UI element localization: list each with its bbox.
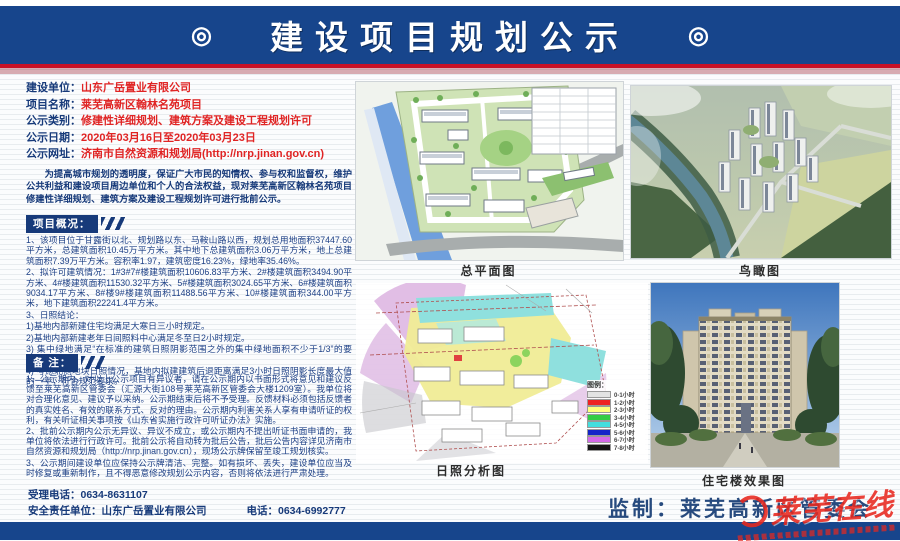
- slashes-decoration-icon: [101, 217, 125, 230]
- info-label: 建设单位：: [26, 80, 81, 97]
- header-banner: ◎ 建设项目规划公示 ◎: [0, 6, 900, 68]
- safety-unit: 安全责任单位：山东广岳置业有限公司: [28, 503, 207, 518]
- ornament-left-icon: ◎: [191, 21, 212, 50]
- info-row-website: 公示网址： 济南市自然资源和规划局(http://nrp.jinan.gov.c…: [26, 146, 352, 163]
- left-column: 建设单位： 山东广岳置业有限公司 项目名称： 莱芜高新区翰林名苑项目 公示类别：…: [26, 70, 352, 522]
- notes-text: 1、公示期内，对以上公示项目有异议者，请在公示期内以书面形式将意见和建议反馈至莱…: [26, 374, 352, 482]
- slashes-decoration-icon: [81, 356, 105, 369]
- overview-line: 2)基地内部新建老年日间照料中心满足冬至日2小时规定。: [26, 333, 352, 343]
- legend-row: 7-8小时: [587, 444, 645, 452]
- legend-swatch: [587, 436, 611, 443]
- overview-line: 3、日照结论：: [26, 310, 352, 320]
- ornament-right-icon: ◎: [688, 21, 709, 50]
- info-value: 山东广岳置业有限公司: [81, 80, 191, 97]
- intro-paragraph: 为提高城市规划的透明度，保证广大市民的知情权、参与权和监督权，维护公共利益和建设…: [26, 168, 352, 205]
- residential-render-photo: [651, 283, 839, 467]
- watermark-text: 莱芜在线: [768, 480, 895, 533]
- info-row-date: 公示日期： 2020年03月16日至2020年03月23日: [26, 130, 352, 147]
- watermark-logo-icon: [735, 494, 769, 528]
- info-label: 公示类别：: [26, 113, 81, 130]
- project-info-list: 建设单位： 山东广岳置业有限公司 项目名称： 莱芜高新区翰林名苑项目 公示类别：…: [26, 80, 352, 163]
- main-content: 建设单位： 山东广岳置业有限公司 项目名称： 莱芜高新区翰林名苑项目 公示类别：…: [0, 70, 900, 522]
- info-value: 莱芜高新区翰林名苑项目: [81, 97, 202, 114]
- legend-title: 图例：: [587, 380, 645, 390]
- legend-swatch: [587, 414, 611, 421]
- site-plan-caption: 总平面图: [355, 262, 622, 279]
- notes-section-header: 备 注：: [26, 355, 105, 370]
- notes-line: 3、公示期间建设单位应保持公示牌清洁、完整。如有损坏、丢失，建设单位应当及时修复…: [26, 458, 352, 478]
- overview-section-header: 项目概况：: [26, 216, 125, 231]
- bird-view-photo: [631, 86, 891, 258]
- legend-swatch: [587, 406, 611, 413]
- info-label: 公示网址：: [26, 146, 81, 163]
- notes-line: 1、公示期内，对以上公示项目有异议者，请在公示期内以书面形式将意见和建议反馈至莱…: [26, 374, 352, 425]
- info-row-category: 公示类别： 修建性详细规划、建筑方案及建设工程规划许可: [26, 113, 352, 130]
- legend-swatch: [587, 429, 611, 436]
- site-plan-image: [355, 81, 624, 261]
- acceptance-phone: 受理电话：0634-8631107: [28, 487, 148, 502]
- legend-swatch: [587, 391, 611, 398]
- legend-swatch: [587, 444, 611, 451]
- overview-text: 1、该项目位于甘露街以北、规划路以东、马鞍山路以西，规划总用地面积37447.6…: [26, 235, 352, 367]
- overview-line: 2、拟许可建筑情况：1#3#7#楼建筑面积10606.83平方米、2#楼建筑面积…: [26, 267, 352, 309]
- legend-swatch: [587, 399, 611, 406]
- sunshine-analysis-image: 图例： 0-1小时 1-2小时 2-3小时 3-4小时 4-5小时: [356, 283, 648, 463]
- info-value: 济南市自然资源和规划局(http://nrp.jinan.gov.cn): [81, 146, 324, 163]
- page-title: 建设项目规划公示: [270, 11, 630, 59]
- sunshine-legend: 图例： 0-1小时 1-2小时 2-3小时 3-4小时 4-5小时: [587, 380, 645, 451]
- laiwu-online-watermark: 莱芜在线: [734, 480, 895, 541]
- info-row-project: 项目名称： 莱芜高新区翰林名苑项目: [26, 97, 352, 114]
- info-label: 项目名称：: [26, 97, 81, 114]
- legend-label: 7-8小时: [614, 443, 635, 452]
- overview-line: 1、该项目位于甘露街以北、规划路以东、马鞍山路以西，规划总用地面积37447.6…: [26, 235, 352, 266]
- bird-view-image: [630, 85, 892, 259]
- info-row-unit: 建设单位： 山东广岳置业有限公司: [26, 80, 352, 97]
- sunshine-caption: 日照分析图: [356, 462, 586, 479]
- overview-line: 1)基地内部新建住宅均满足大寒日三小时规定。: [26, 321, 352, 331]
- safety-phone: 电话：0634-6992777: [247, 503, 346, 518]
- info-value: 修建性详细规划、建筑方案及建设工程规划许可: [81, 113, 312, 130]
- notes-line: 2、批前公示期内公示无异议、异议不成立，或公示期内不提出听证书面申请的，我单位将…: [26, 426, 352, 457]
- planning-announcement-poster: { "header": { "title": "建设项目规划公示", "orna…: [0, 0, 900, 540]
- bird-view-caption: 鸟瞰图: [630, 262, 890, 279]
- legend-swatch: [587, 421, 611, 428]
- info-label: 公示日期：: [26, 130, 81, 147]
- info-value: 2020年03月16日至2020年03月23日: [81, 130, 256, 147]
- notes-heading: 备 注：: [26, 354, 78, 372]
- safety-line: 安全责任单位：山东广岳置业有限公司 电话：0634-6992777: [28, 503, 346, 518]
- site-plan-drawing: [356, 82, 623, 260]
- residential-render-image: [650, 282, 840, 468]
- overview-heading: 项目概况：: [26, 215, 98, 233]
